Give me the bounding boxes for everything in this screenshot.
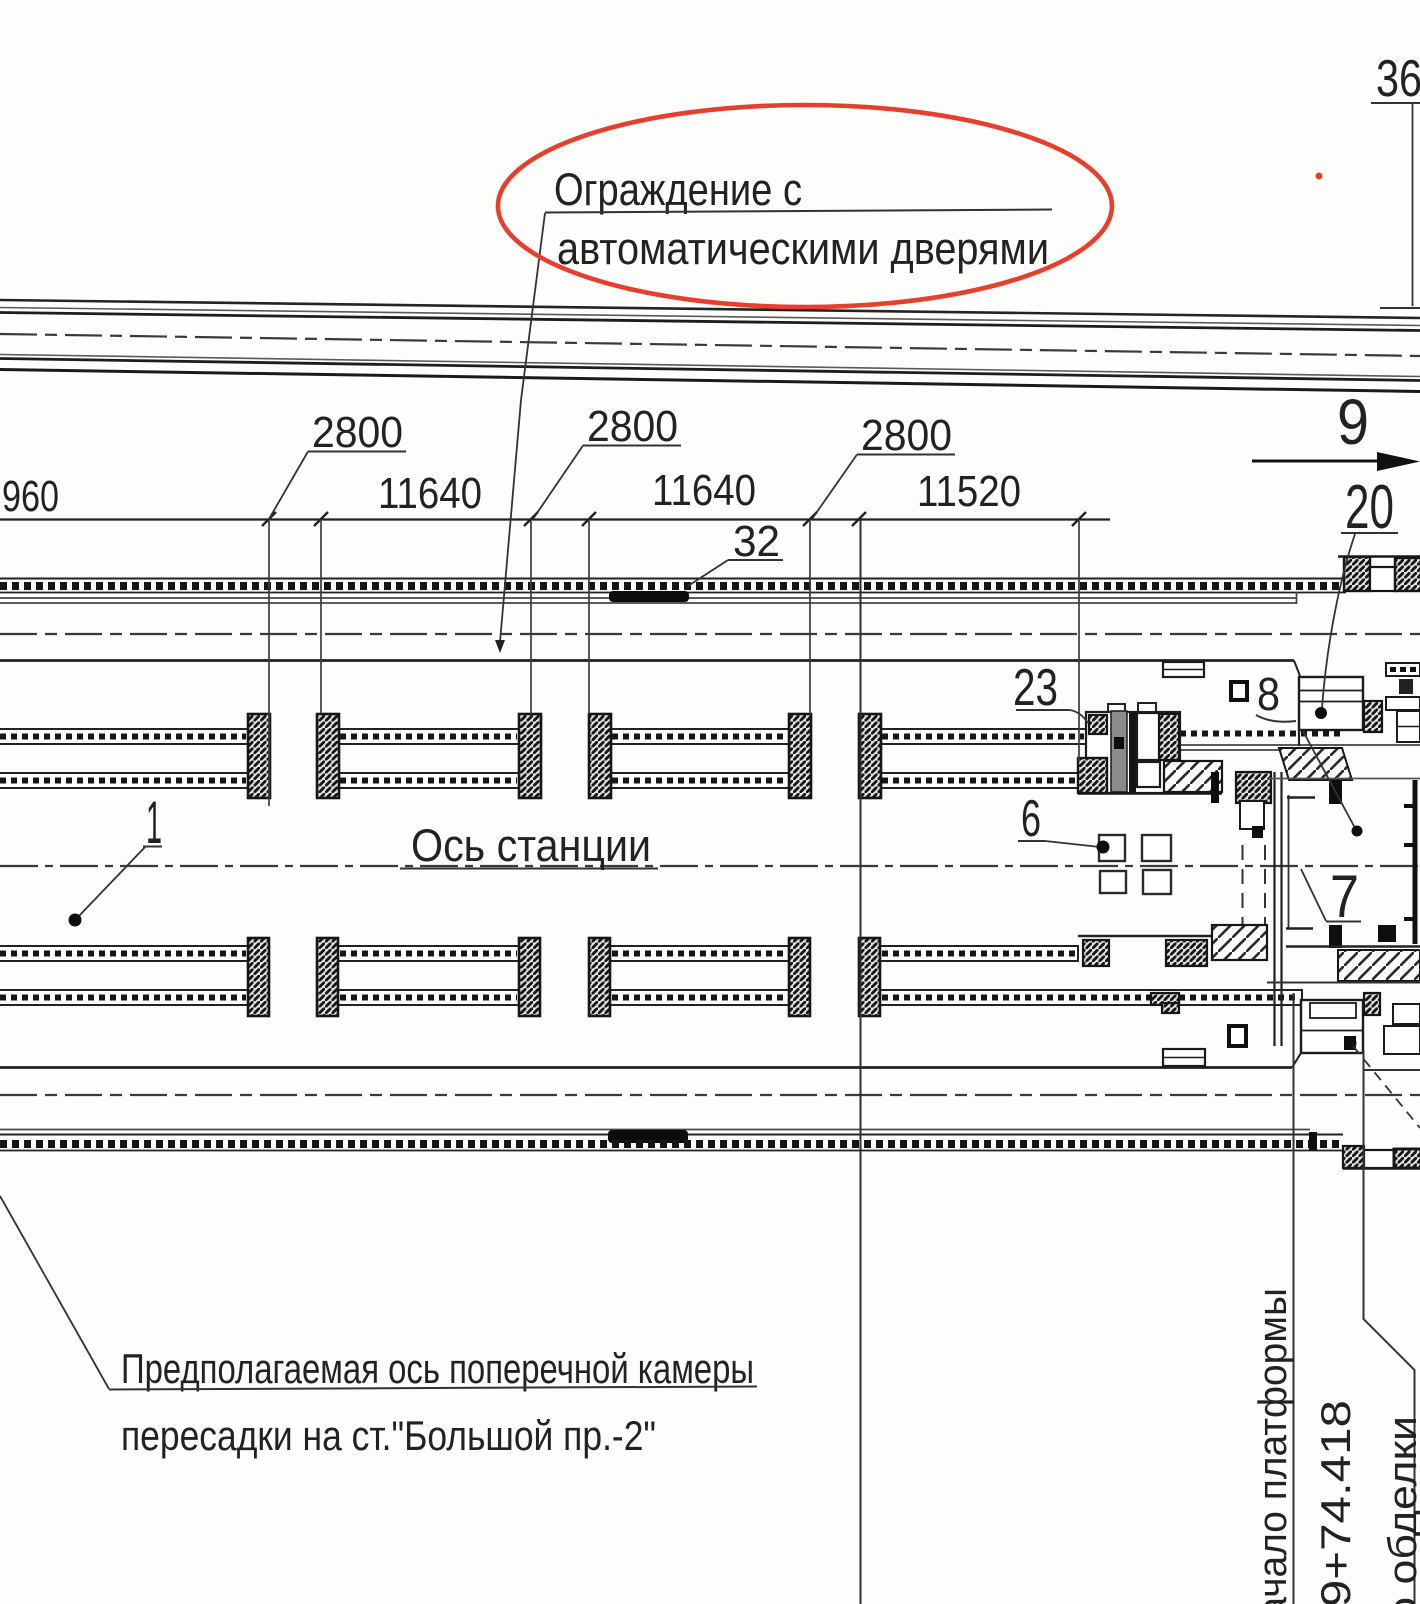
- svg-text:6: 6: [1021, 790, 1041, 848]
- svg-text:7: 7: [1330, 863, 1359, 930]
- svg-text:2800: 2800: [312, 408, 403, 457]
- svg-text:36: 36: [1376, 50, 1420, 108]
- svg-text:960: 960: [2, 472, 59, 521]
- svg-text:20: 20: [1345, 473, 1394, 542]
- svg-text:Ограждение с: Ограждение с: [554, 164, 802, 215]
- svg-text:по обделки: по обделки: [1381, 1416, 1420, 1604]
- svg-text:11640: 11640: [378, 469, 482, 518]
- svg-text:219+74.418: 219+74.418: [1312, 1400, 1359, 1604]
- svg-text:2800: 2800: [587, 402, 678, 451]
- svg-text:пересадки на ст."Большой пр.-2: пересадки на ст."Большой пр.-2": [121, 1412, 656, 1459]
- svg-text:23: 23: [1013, 659, 1058, 717]
- svg-text:32: 32: [733, 517, 780, 566]
- svg-text:11640: 11640: [652, 466, 756, 515]
- svg-text:начало платформы: начало платформы: [1251, 1288, 1295, 1604]
- svg-text:11520: 11520: [917, 467, 1021, 516]
- svg-text:Ось станции: Ось станции: [411, 820, 651, 871]
- svg-text:8: 8: [1257, 668, 1280, 720]
- svg-text:2800: 2800: [861, 411, 952, 460]
- svg-text:автоматическими дверями: автоматическими дверями: [557, 223, 1049, 274]
- svg-text:9: 9: [1337, 386, 1369, 458]
- svg-text:Предполагаемая ось поперечной: Предполагаемая ось поперечной камеры: [121, 1345, 754, 1392]
